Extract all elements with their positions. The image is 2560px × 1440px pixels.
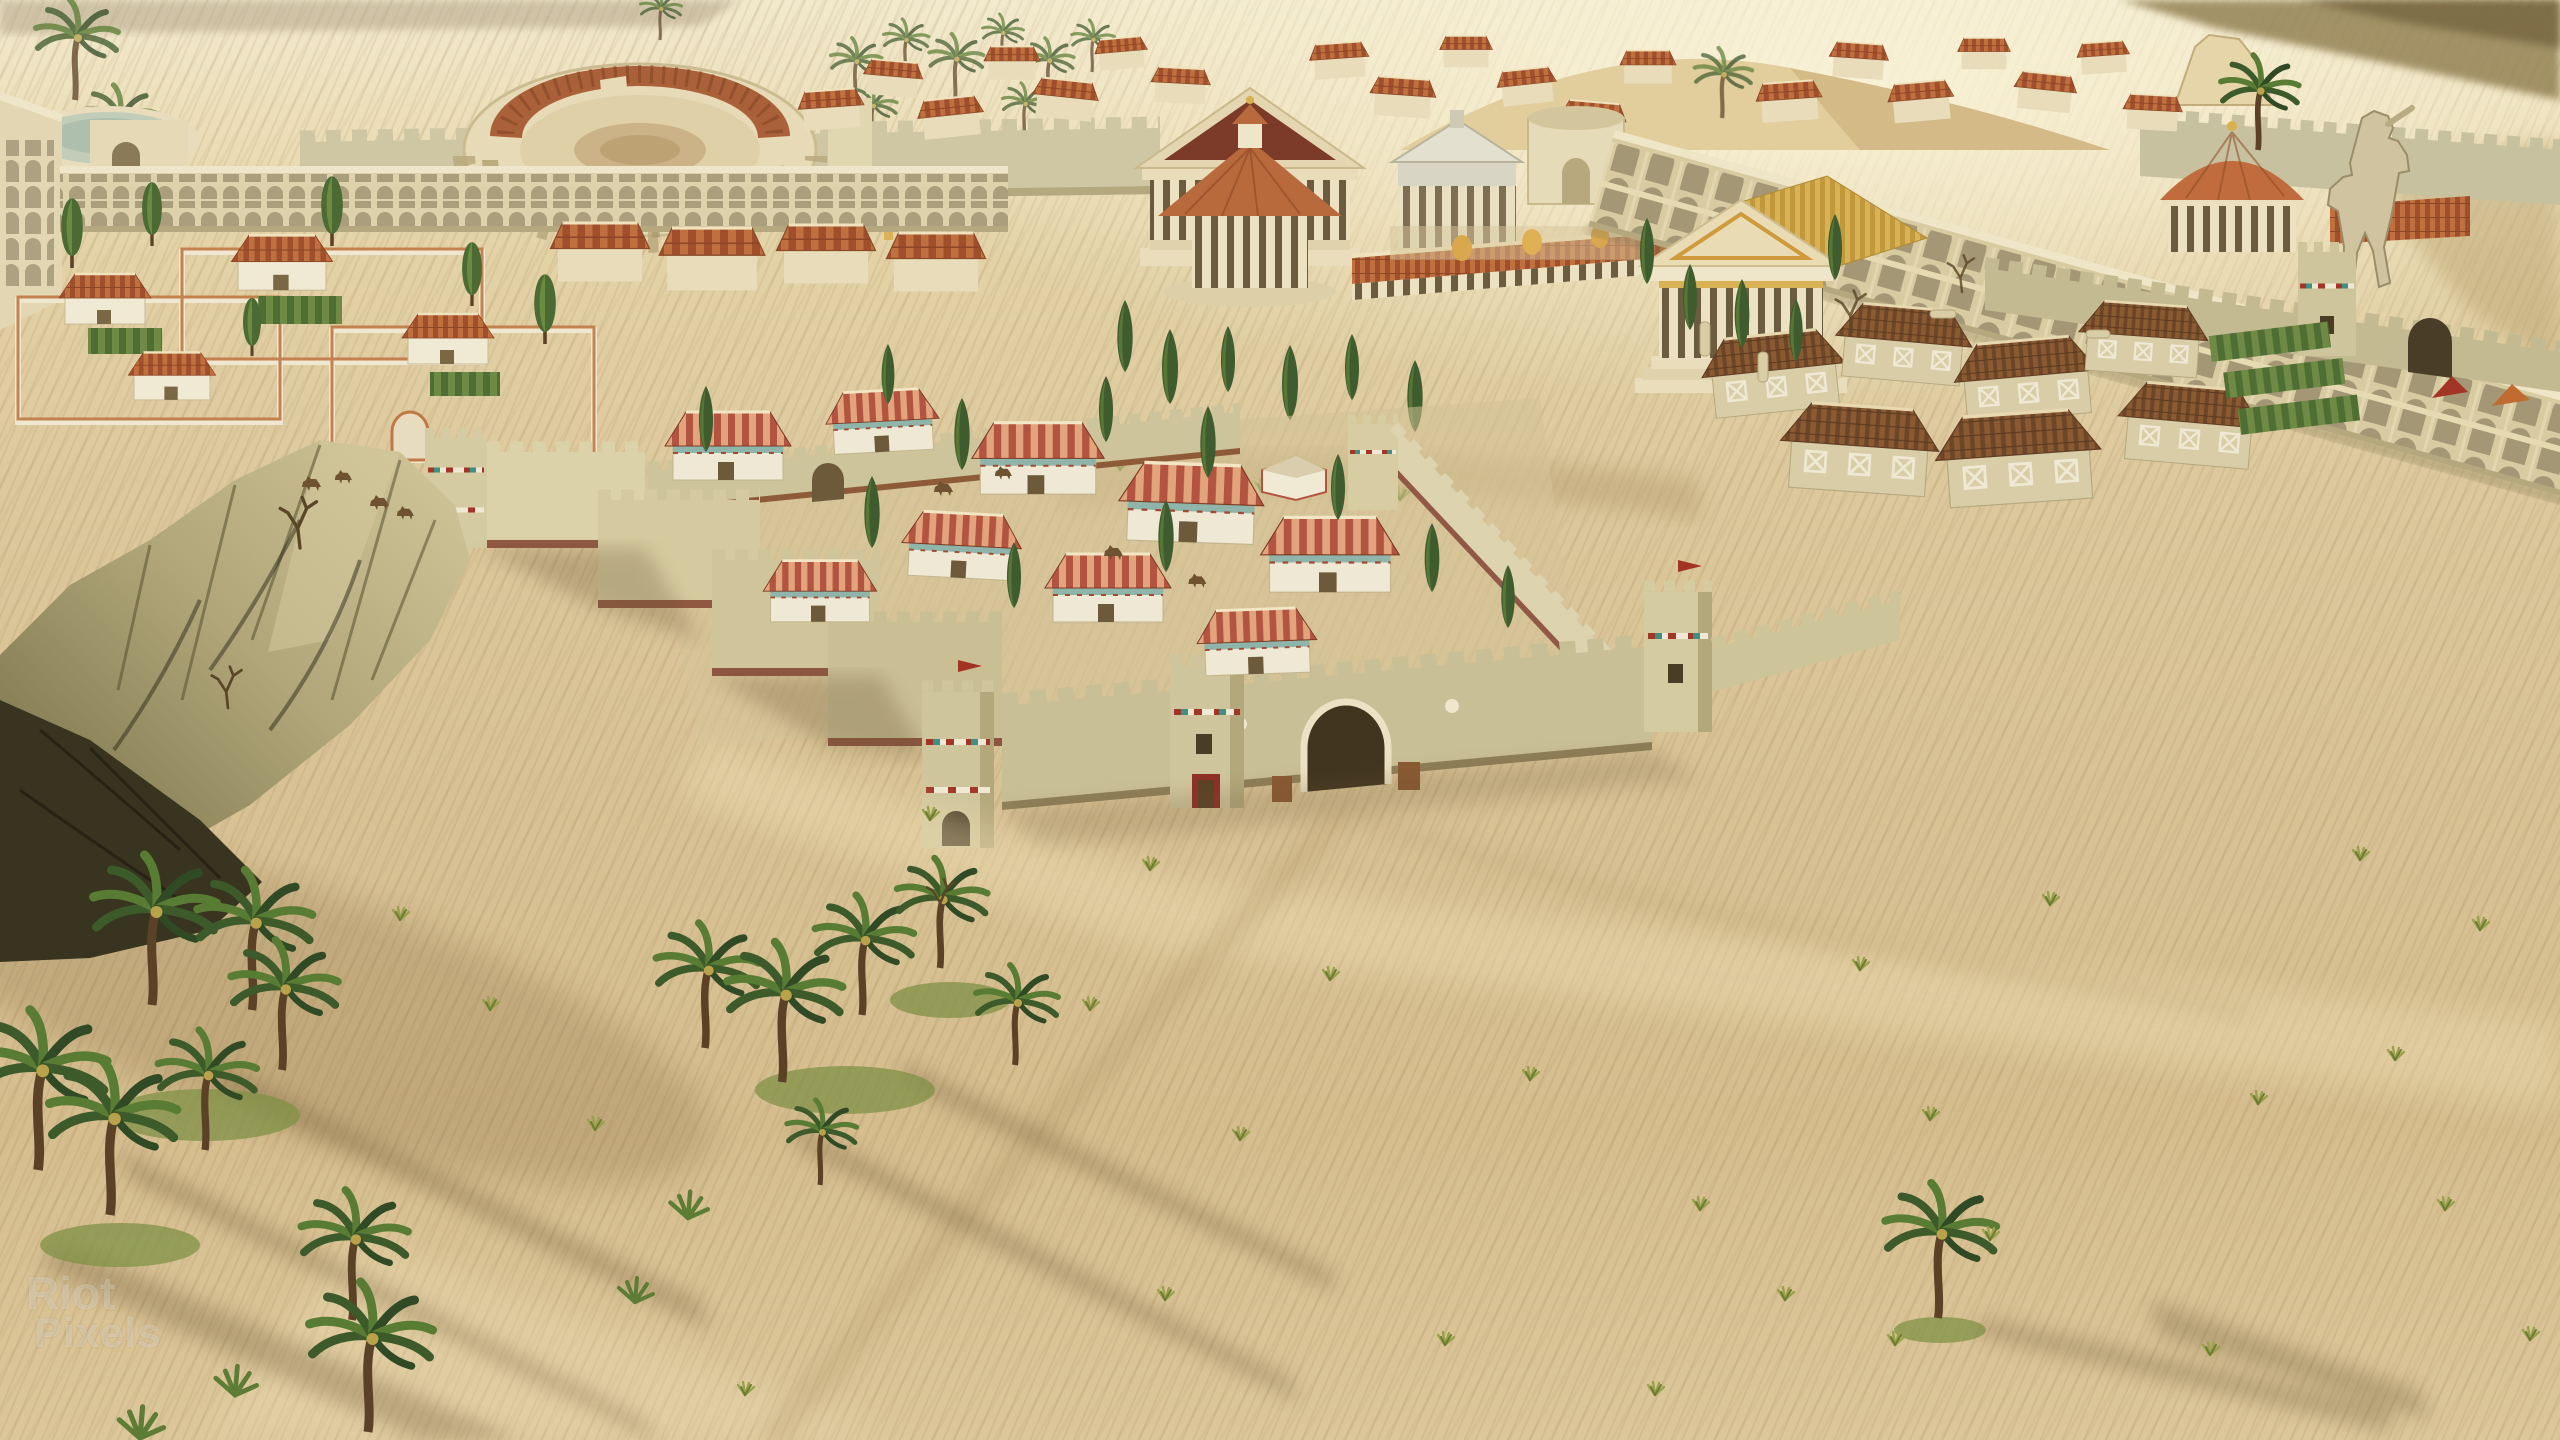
garden-plot[interactable] xyxy=(430,372,500,396)
villa-house[interactable] xyxy=(59,274,151,324)
grass-tufts xyxy=(393,807,2539,1395)
watermark-line1: Riot xyxy=(26,1272,161,1314)
game-viewport[interactable]: Riot Pixels xyxy=(0,0,2560,1440)
villa-house[interactable] xyxy=(128,352,215,400)
fort-corner-tower-right[interactable] xyxy=(1644,560,1712,732)
two-story-colonnade[interactable] xyxy=(60,166,1008,292)
garden-plot[interactable] xyxy=(88,328,162,354)
flag xyxy=(1678,560,1702,576)
fortress[interactable] xyxy=(425,344,1900,848)
fort-wall-extension[interactable] xyxy=(1712,600,1900,692)
villa-house[interactable] xyxy=(231,235,332,290)
inner-arch[interactable] xyxy=(812,463,844,502)
fort-checker-tower[interactable] xyxy=(1348,419,1398,510)
garden-gate[interactable] xyxy=(2408,318,2452,378)
round-temple[interactable] xyxy=(1158,96,1342,307)
wall-lamp xyxy=(1445,699,1459,713)
game-world[interactable] xyxy=(0,0,2560,1440)
garden-plot[interactable] xyxy=(258,296,342,324)
riot-pixels-watermark: Riot Pixels xyxy=(26,1272,161,1353)
villa-house[interactable] xyxy=(402,314,494,364)
watermark-line2: Pixels xyxy=(34,1314,161,1353)
market-halls[interactable] xyxy=(551,223,986,292)
